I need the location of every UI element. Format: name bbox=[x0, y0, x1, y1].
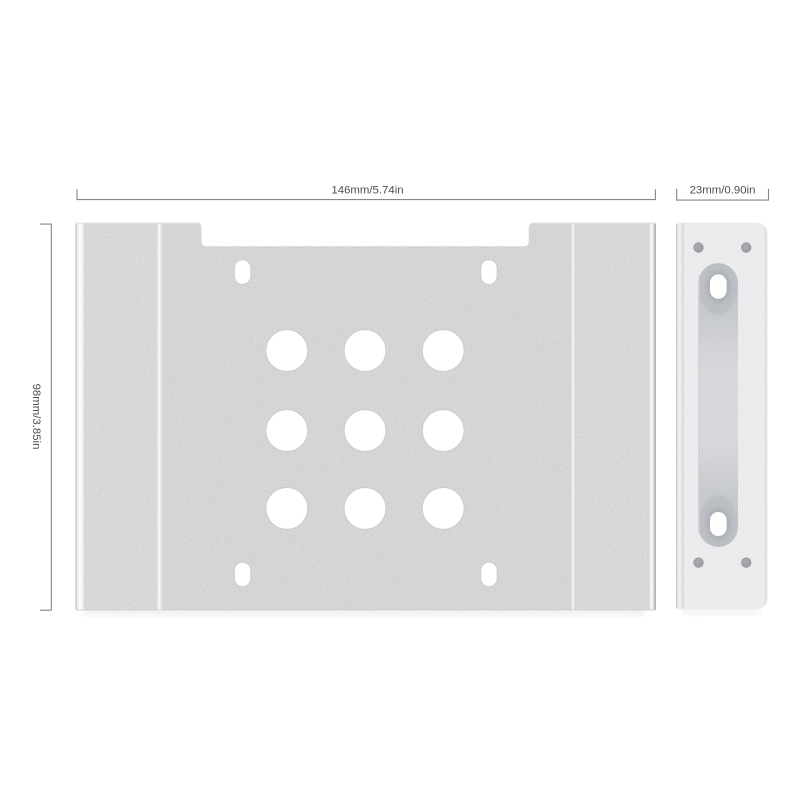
svg-text:146mm/5.74in: 146mm/5.74in bbox=[331, 185, 403, 197]
svg-text:98mm/3.85in: 98mm/3.85in bbox=[30, 384, 42, 450]
svg-text:23mm/0.90in: 23mm/0.90in bbox=[690, 185, 756, 197]
